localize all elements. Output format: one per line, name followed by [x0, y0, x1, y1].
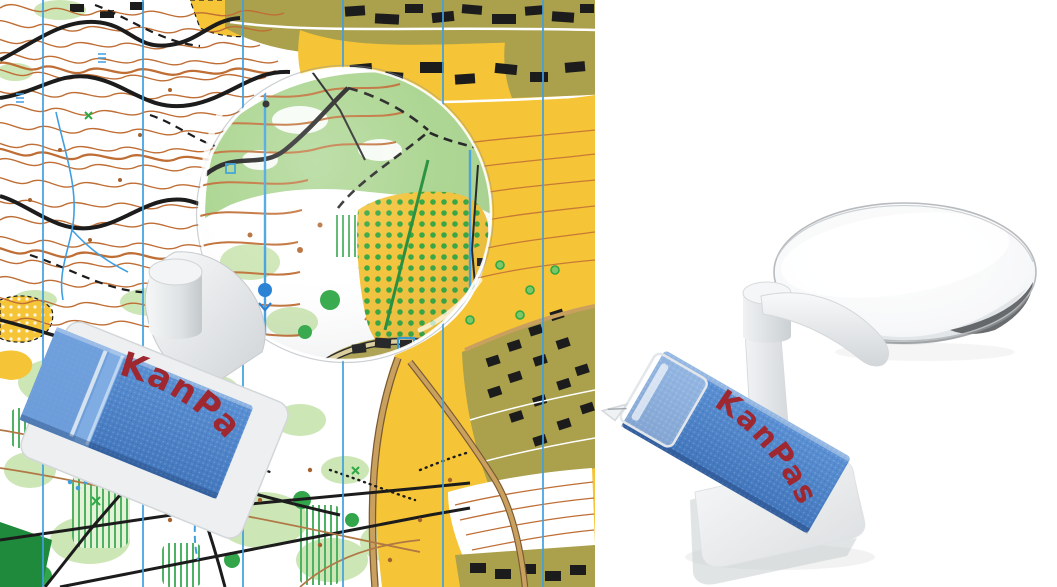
- product-photo: KanPas: [595, 0, 1057, 587]
- product-photo-panel: KanPas: [595, 0, 1057, 587]
- map-photo-panel: KanPas: [0, 0, 595, 587]
- product-image: KanPas: [0, 0, 1057, 587]
- orienteering-map-photo: KanPas: [0, 0, 595, 587]
